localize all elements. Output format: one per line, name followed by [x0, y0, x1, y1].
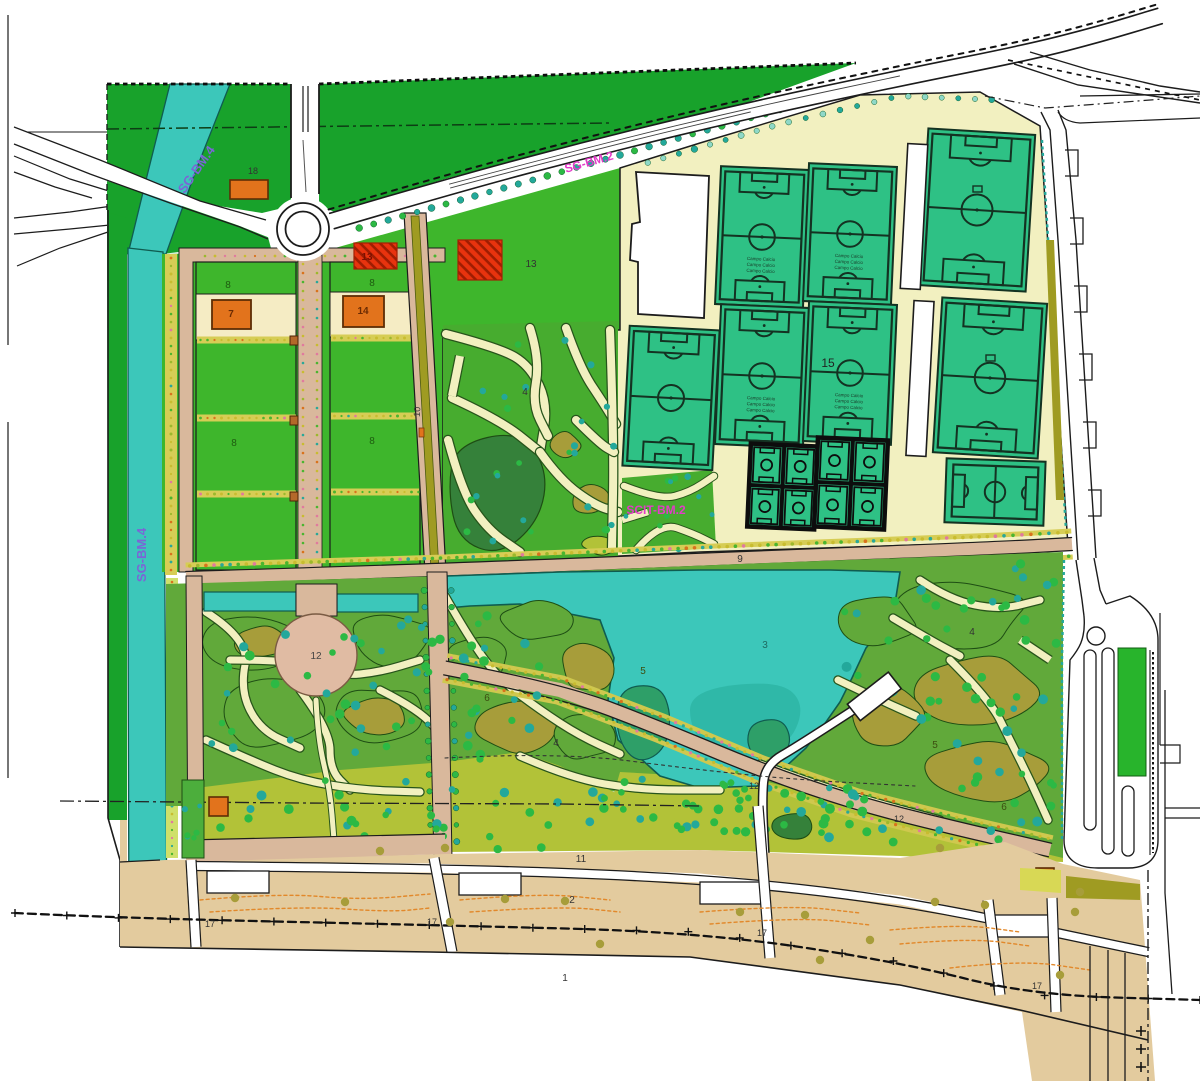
- svg-text:8: 8: [225, 280, 231, 291]
- svg-text:SCIT-BM.2: SCIT-BM.2: [626, 503, 686, 517]
- svg-text:12: 12: [310, 651, 322, 662]
- svg-text:2: 2: [569, 895, 575, 906]
- svg-text:8: 8: [231, 438, 237, 449]
- svg-text:13: 13: [361, 252, 373, 263]
- svg-text:1: 1: [562, 973, 568, 984]
- svg-text:13: 13: [525, 259, 537, 270]
- svg-text:7: 7: [228, 309, 234, 320]
- svg-text:6: 6: [1001, 802, 1007, 813]
- svg-text:8: 8: [369, 278, 375, 289]
- svg-text:4: 4: [969, 627, 975, 638]
- svg-text:4: 4: [553, 738, 559, 749]
- svg-text:17: 17: [757, 928, 767, 938]
- svg-text:6: 6: [484, 693, 490, 704]
- svg-text:18: 18: [248, 166, 258, 176]
- svg-text:17: 17: [427, 917, 437, 927]
- svg-text:5: 5: [640, 666, 646, 677]
- svg-text:10: 10: [412, 406, 423, 417]
- svg-text:3: 3: [762, 640, 768, 651]
- svg-text:5: 5: [932, 740, 938, 751]
- svg-text:8: 8: [369, 436, 375, 447]
- svg-text:9: 9: [737, 554, 743, 565]
- svg-text:4: 4: [522, 387, 528, 398]
- svg-text:SG-BM.4: SG-BM.4: [134, 527, 149, 582]
- svg-text:17: 17: [205, 919, 215, 929]
- svg-text:11: 11: [576, 854, 587, 865]
- svg-text:15: 15: [821, 356, 835, 370]
- svg-text:12: 12: [894, 814, 904, 824]
- svg-text:14: 14: [357, 306, 369, 317]
- svg-text:12: 12: [749, 781, 759, 791]
- svg-text:17: 17: [1032, 981, 1042, 991]
